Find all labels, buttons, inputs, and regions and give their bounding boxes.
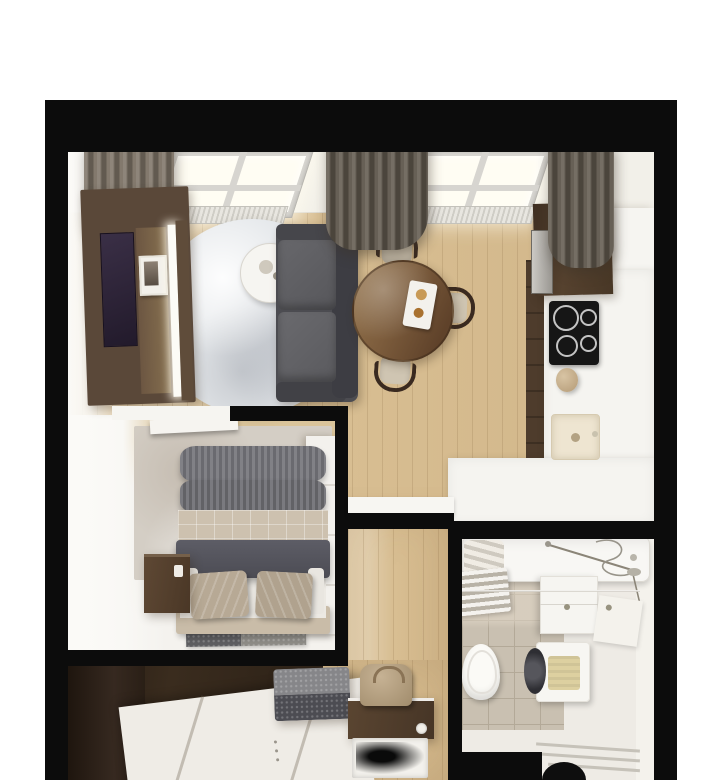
faucet (605, 604, 612, 611)
burner (553, 305, 579, 331)
bedroom-wall-bottom (45, 650, 348, 666)
tv-screen (100, 232, 138, 347)
bathroom-corner-wall (448, 752, 542, 780)
bag (360, 664, 412, 706)
radiator-right (415, 206, 536, 224)
bedside-table (144, 554, 190, 613)
bedroom-wall-top-face (112, 406, 232, 420)
pillow-right (255, 571, 313, 620)
burner (556, 335, 578, 357)
outer-wall-right (654, 100, 677, 780)
photo (144, 261, 159, 285)
kitchen-bath-divider-wall (448, 521, 654, 539)
burner (580, 335, 597, 352)
bathroom-wall-left (448, 528, 462, 780)
corner-shelf (593, 595, 643, 647)
curtain-center (326, 138, 428, 250)
sofa-cushion (278, 240, 336, 310)
pouf-top (273, 667, 350, 696)
sink-drain (571, 433, 580, 442)
towel-on-washer (548, 656, 580, 690)
kitchen-counter-bottom (448, 458, 654, 524)
outer-wall-top (45, 100, 677, 152)
kitchen-sink (551, 414, 600, 460)
pouf (273, 667, 351, 722)
toilet-seat (467, 650, 497, 694)
washer-door (524, 648, 546, 694)
apartment-floor-plan (0, 0, 722, 780)
burner (580, 309, 597, 326)
kettle (556, 368, 578, 392)
sofa (276, 224, 358, 402)
cooktop (549, 301, 599, 365)
bedroom-wall-right (335, 414, 348, 666)
faucet (564, 604, 570, 610)
photo-frame (139, 255, 168, 296)
table-decor (259, 260, 273, 274)
door-handle-dots (274, 740, 277, 743)
dining-table (352, 260, 454, 362)
tv-shelf (136, 227, 172, 394)
sofa-cushion (278, 312, 336, 382)
curtain-right (548, 144, 614, 268)
pillow-left (188, 570, 249, 620)
bag-handle (373, 666, 405, 683)
hall-stub-wall (348, 513, 454, 529)
double-bed (176, 428, 330, 634)
toilet (462, 644, 500, 700)
floor-seam (168, 696, 205, 780)
tray-food (413, 307, 425, 319)
quilted-duvet (178, 510, 328, 544)
sink-faucet (592, 431, 598, 437)
gray-blanket-roll (180, 480, 326, 512)
doormat (352, 738, 428, 778)
vanity-sink (540, 576, 598, 634)
pouf-side (274, 693, 351, 722)
bedroom-wall-top (230, 406, 348, 421)
tv-wall-unit (80, 186, 195, 406)
tray-food (415, 288, 428, 301)
gray-blanket-roll (180, 446, 326, 482)
outer-wall-left (45, 100, 68, 780)
bedside-decor (174, 565, 183, 577)
doormat-shadow (356, 742, 424, 774)
paper-roll (416, 723, 427, 734)
shower-glass-line (462, 590, 640, 592)
